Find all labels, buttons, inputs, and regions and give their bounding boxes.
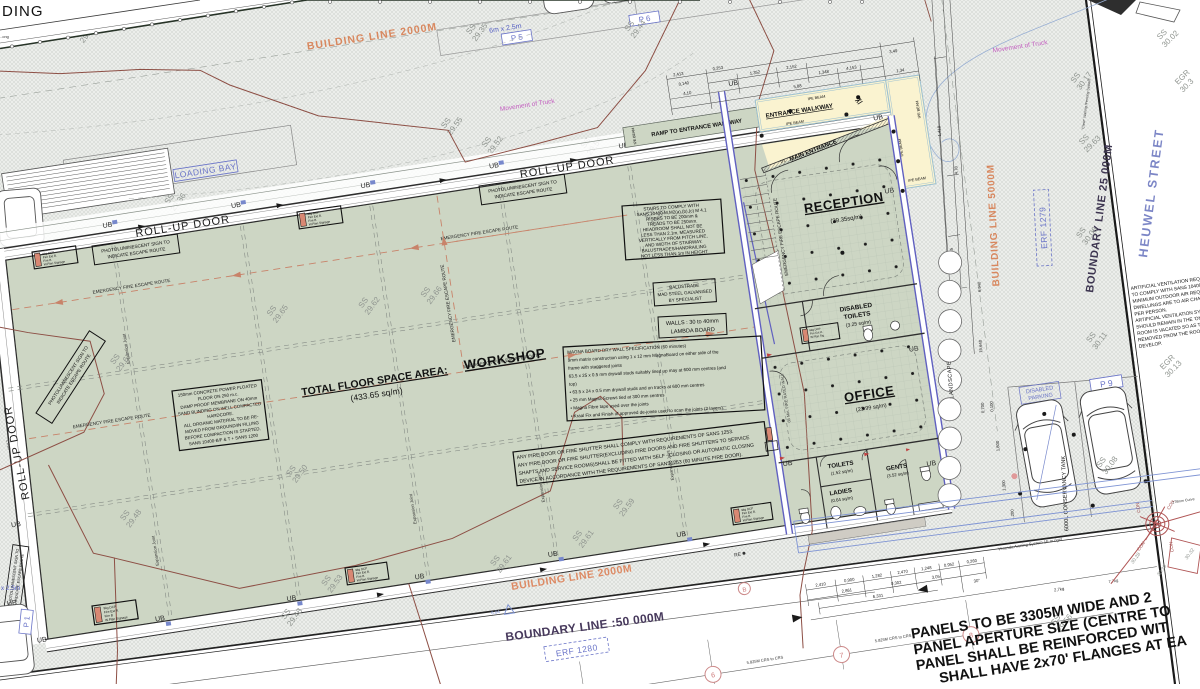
svg-text:30°: 30° bbox=[973, 578, 980, 584]
svg-text:ERF 1279: ERF 1279 bbox=[1037, 206, 1049, 249]
svg-text:6m x 2.5m: 6m x 2.5m bbox=[0, 585, 20, 592]
svg-text:DING: DING bbox=[2, 3, 44, 20]
svg-text:1,800: 1,800 bbox=[995, 440, 1001, 451]
svg-text:4,78: 4,78 bbox=[953, 165, 958, 174]
svg-text:6,940: 6,940 bbox=[976, 281, 982, 292]
svg-text:P 1: P 1 bbox=[22, 616, 32, 628]
svg-text:0,100: 0,100 bbox=[989, 400, 995, 411]
svg-text:1,418: 1,418 bbox=[936, 125, 942, 136]
svg-text:1,300: 1,300 bbox=[1001, 480, 1007, 491]
svg-text:15,640: 15,640 bbox=[978, 339, 984, 353]
svg-text:0,700: 0,700 bbox=[980, 402, 986, 413]
svg-text:..ong: ..ong bbox=[0, 34, 9, 39]
svg-text:top): top) bbox=[569, 381, 578, 386]
svg-text:P 5: P 5 bbox=[510, 32, 524, 43]
